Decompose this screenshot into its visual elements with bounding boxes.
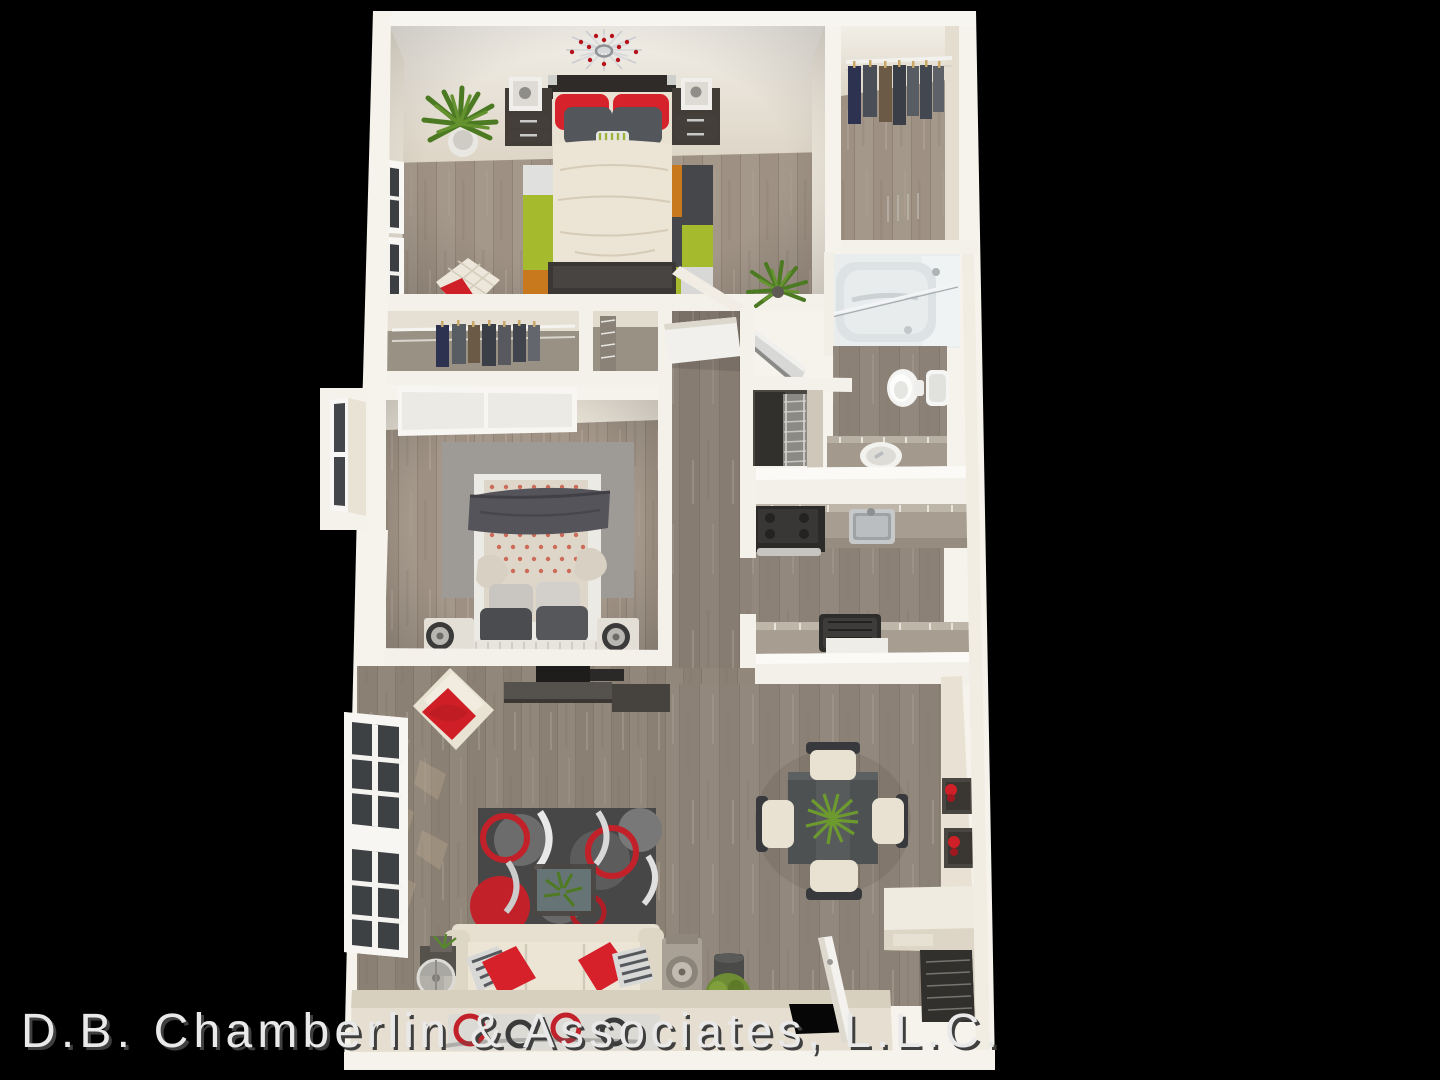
svg-text:D.B. Chamberlin & Associates,: D.B. Chamberlin & Associates, L.L.C.	[21, 1005, 1003, 1058]
